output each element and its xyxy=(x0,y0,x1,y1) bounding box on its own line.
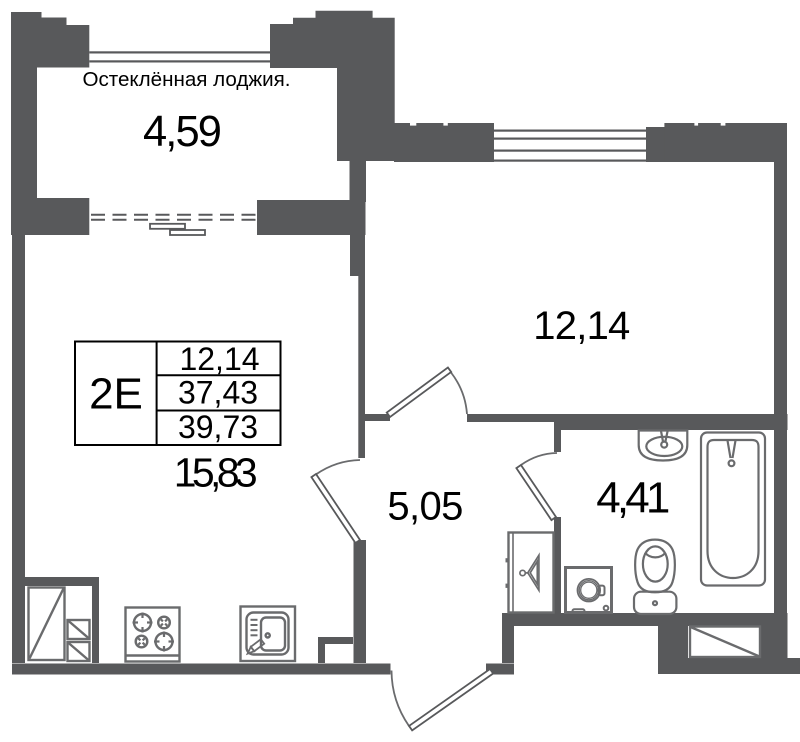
svg-text:2E: 2E xyxy=(89,369,143,418)
svg-text:39,73: 39,73 xyxy=(178,409,258,445)
svg-text:Остеклённая лоджия.: Остеклённая лоджия. xyxy=(83,68,291,91)
svg-text:12,14: 12,14 xyxy=(179,341,259,377)
svg-text:12,14: 12,14 xyxy=(533,304,630,348)
svg-text:5,05: 5,05 xyxy=(387,485,463,529)
svg-text:4,41: 4,41 xyxy=(596,474,670,523)
svg-text:37,43: 37,43 xyxy=(178,375,258,411)
svg-text:15,83: 15,83 xyxy=(174,450,258,496)
svg-text:4,59: 4,59 xyxy=(143,108,222,156)
